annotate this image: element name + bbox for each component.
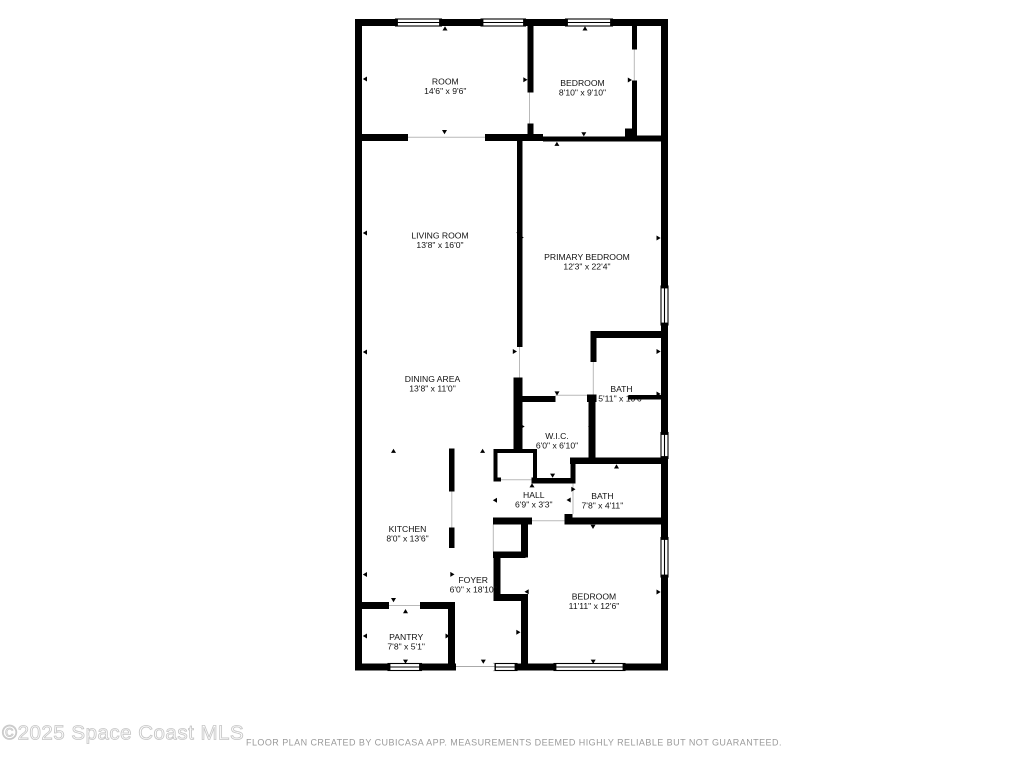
svg-text:6'0" x 6'10": 6'0" x 6'10" xyxy=(536,440,578,450)
svg-text:FOYER: FOYER xyxy=(458,575,488,585)
svg-text:14'6" x 9'6": 14'6" x 9'6" xyxy=(424,86,466,96)
svg-text:7'8" x 4'11": 7'8" x 4'11" xyxy=(582,501,624,511)
svg-text:W.I.C.: W.I.C. xyxy=(545,431,568,441)
svg-text:7'8" x 5'1": 7'8" x 5'1" xyxy=(387,642,425,652)
svg-text:BATH: BATH xyxy=(591,491,613,501)
svg-text:PANTRY: PANTRY xyxy=(389,632,423,642)
svg-text:©2025 Space Coast MLS: ©2025 Space Coast MLS xyxy=(2,722,244,745)
svg-text:BEDROOM: BEDROOM xyxy=(560,78,604,88)
svg-text:6'0" x 18'10": 6'0" x 18'10" xyxy=(450,585,497,595)
svg-text:13'8" x 16'0": 13'8" x 16'0" xyxy=(416,240,463,250)
svg-text:FLOOR PLAN CREATED BY CUBICASA: FLOOR PLAN CREATED BY CUBICASA APP. MEAS… xyxy=(246,738,782,748)
svg-text:PRIMARY BEDROOM: PRIMARY BEDROOM xyxy=(544,252,630,262)
svg-text:KITCHEN: KITCHEN xyxy=(389,524,427,534)
svg-text:BEDROOM: BEDROOM xyxy=(572,592,616,602)
svg-text:13'8" x 11'0": 13'8" x 11'0" xyxy=(409,384,456,394)
svg-text:8'10" x 9'10": 8'10" x 9'10" xyxy=(559,87,606,97)
svg-text:6'9" x 3'3": 6'9" x 3'3" xyxy=(515,500,553,510)
svg-text:8'0" x 13'6": 8'0" x 13'6" xyxy=(386,534,428,544)
svg-text:LIVING ROOM: LIVING ROOM xyxy=(411,231,468,241)
svg-text:BATH: BATH xyxy=(610,384,632,394)
svg-text:11'11" x 12'6": 11'11" x 12'6" xyxy=(569,601,620,611)
svg-text:HALL: HALL xyxy=(523,490,545,500)
svg-text:DINING AREA: DINING AREA xyxy=(405,374,461,384)
svg-text:12'3" x 22'4": 12'3" x 22'4" xyxy=(563,261,610,271)
svg-text:ROOM: ROOM xyxy=(432,76,459,86)
